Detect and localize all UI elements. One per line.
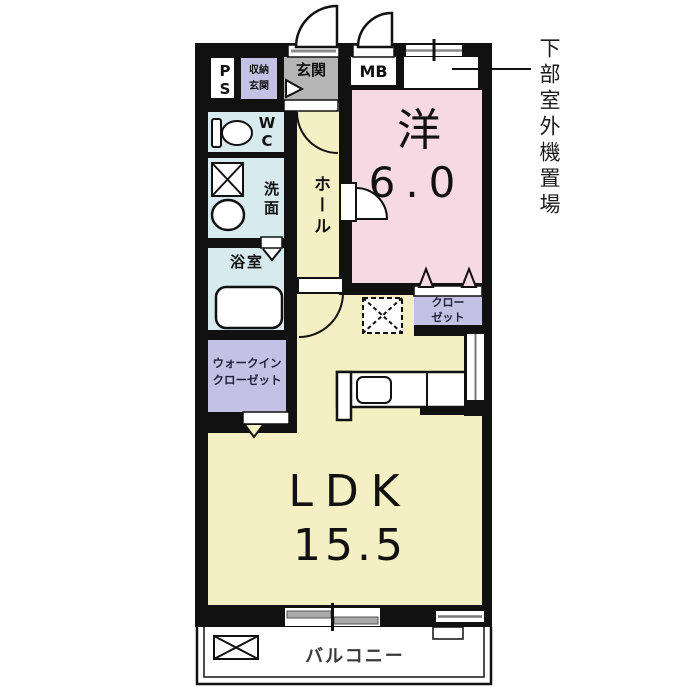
washroom-label: 洗面 — [256, 168, 282, 232]
walk-in-closet-label: ウォークイン クローゼット — [207, 355, 287, 389]
entrance-step-icon — [286, 80, 302, 97]
floorplan-canvas: PS 収納 玄関 玄関 MB WC 洗面 浴室 ホール ウォークイン クローゼッ… — [0, 0, 700, 700]
entrance-door-icon — [288, 6, 339, 57]
outdoor-unit-icon — [214, 636, 258, 659]
entrance-label: 玄関 — [284, 58, 338, 80]
wic-door-icon — [243, 412, 289, 437]
wic-line1: ウォークイン — [213, 355, 282, 372]
balcony-window-icon — [285, 603, 380, 631]
closet-door-icon — [414, 269, 482, 296]
hall-label: ホール — [305, 166, 333, 246]
bathroom-label: 浴室 — [220, 250, 274, 272]
toilet-icon — [212, 119, 252, 147]
closet-line2: ゼット — [432, 311, 465, 325]
entrance-storage-label: 収納 玄関 — [240, 60, 278, 97]
washing-machine-icon — [212, 163, 243, 196]
ldk-label: LDK — [252, 466, 448, 516]
meter-box-label: MB — [349, 55, 398, 87]
ldk-side-window-icon — [464, 330, 492, 416]
entrance-hall-door-icon — [284, 100, 338, 153]
wic-line2: クローゼット — [213, 372, 282, 389]
hall-ldk-door-icon — [298, 278, 343, 337]
closet-line1: クロー — [432, 296, 465, 310]
floorplan-symbols — [0, 0, 700, 700]
sink-icon — [212, 200, 244, 230]
meter-box-door-icon — [353, 13, 394, 57]
outdoor-unit-note: 下部室外機置場 — [530, 28, 564, 228]
kitchen-counter-icon — [337, 372, 472, 420]
western-room-size: 6.0 — [356, 158, 478, 206]
top-window-icon — [406, 39, 462, 61]
entrance-storage-line1: 収納 — [249, 63, 269, 79]
entrance-storage-line2: 玄関 — [249, 79, 269, 95]
bathtub-icon — [216, 287, 282, 328]
pipe-space-label: PS — [212, 60, 234, 100]
wc-label: WC — [252, 111, 276, 153]
ldk-size: 15.5 — [252, 520, 448, 570]
balcony-label: バルコニー — [290, 642, 420, 668]
western-room-label: 洋 — [394, 100, 444, 152]
closet-label: クロー ゼット — [414, 296, 482, 325]
refrigerator-space-icon — [363, 298, 402, 333]
